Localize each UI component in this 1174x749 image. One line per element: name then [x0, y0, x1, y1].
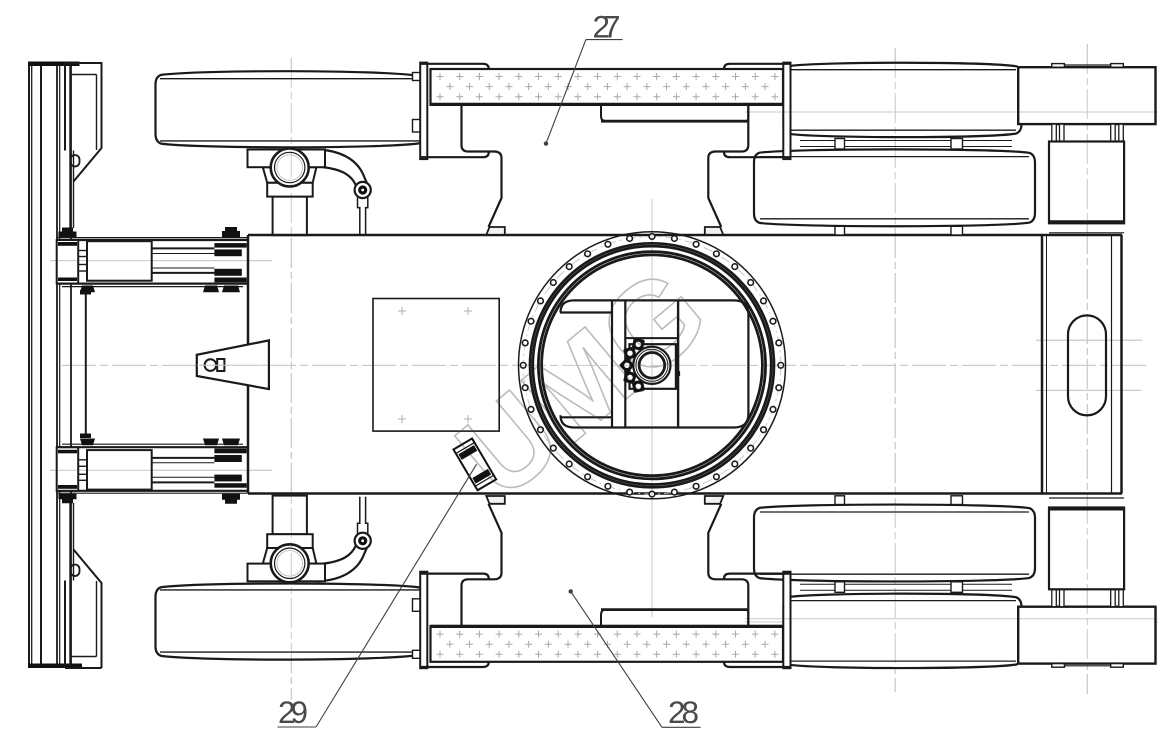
svg-text:28: 28	[668, 694, 699, 730]
svg-text:29: 29	[278, 694, 308, 730]
